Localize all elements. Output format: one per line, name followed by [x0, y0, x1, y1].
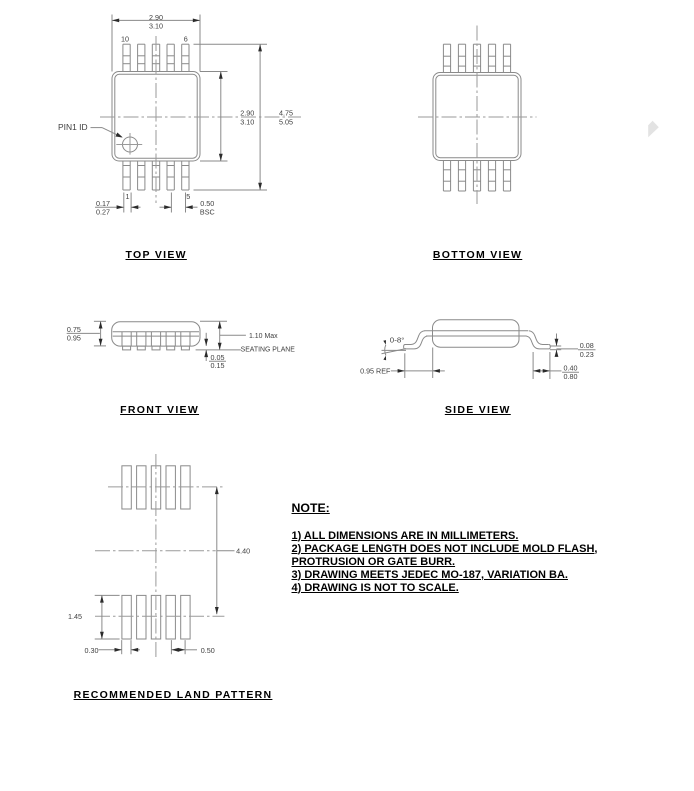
svg-text:0.17: 0.17 [96, 199, 110, 208]
svg-text:0.30: 0.30 [85, 646, 99, 655]
svg-text:5: 5 [186, 192, 190, 201]
svg-text:0.95: 0.95 [67, 333, 81, 342]
svg-text:1: 1 [126, 192, 130, 201]
svg-text:3.10: 3.10 [149, 21, 163, 30]
svg-text:10: 10 [121, 35, 129, 44]
svg-text:6: 6 [184, 35, 188, 44]
svg-text:3.10: 3.10 [240, 117, 254, 126]
svg-text:0.50: 0.50 [200, 199, 214, 208]
svg-text:BSC: BSC [200, 208, 215, 217]
svg-text:0.80: 0.80 [564, 372, 578, 381]
svg-text:4.75: 4.75 [279, 108, 293, 117]
svg-text:0.23: 0.23 [580, 350, 594, 359]
svg-text:5.05: 5.05 [279, 117, 293, 126]
svg-text:0.95 REF: 0.95 REF [360, 368, 390, 375]
svg-text:0.27: 0.27 [96, 208, 110, 217]
svg-text:2.90: 2.90 [240, 108, 254, 117]
svg-text:4.40: 4.40 [236, 546, 250, 555]
svg-text:0.15: 0.15 [211, 361, 225, 370]
svg-text:PIN1 ID: PIN1 ID [58, 123, 88, 132]
svg-text:1.10 Max: 1.10 Max [249, 333, 278, 340]
svg-text:0.50: 0.50 [201, 646, 215, 655]
svg-text:SEATING PLANE: SEATING PLANE [241, 347, 296, 354]
svg-text:1.45: 1.45 [68, 612, 82, 621]
svg-text:0-8°: 0-8° [390, 335, 405, 344]
